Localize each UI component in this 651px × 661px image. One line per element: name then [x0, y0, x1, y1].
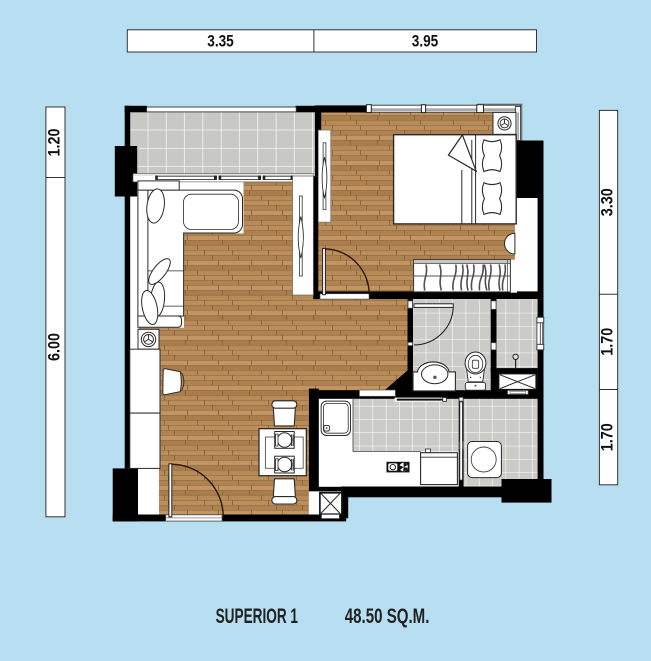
svg-text:48.50 SQ.M.: 48.50 SQ.M. [345, 604, 430, 628]
svg-text:SUPERIOR 1: SUPERIOR 1 [216, 604, 298, 628]
svg-text:3.30: 3.30 [598, 188, 617, 216]
svg-text:6.00: 6.00 [45, 333, 64, 361]
svg-text:1.70: 1.70 [598, 423, 617, 451]
svg-text:1.20: 1.20 [45, 129, 64, 157]
svg-text:3.35: 3.35 [207, 31, 234, 50]
svg-text:3.95: 3.95 [412, 31, 439, 50]
svg-text:1.70: 1.70 [598, 328, 617, 356]
